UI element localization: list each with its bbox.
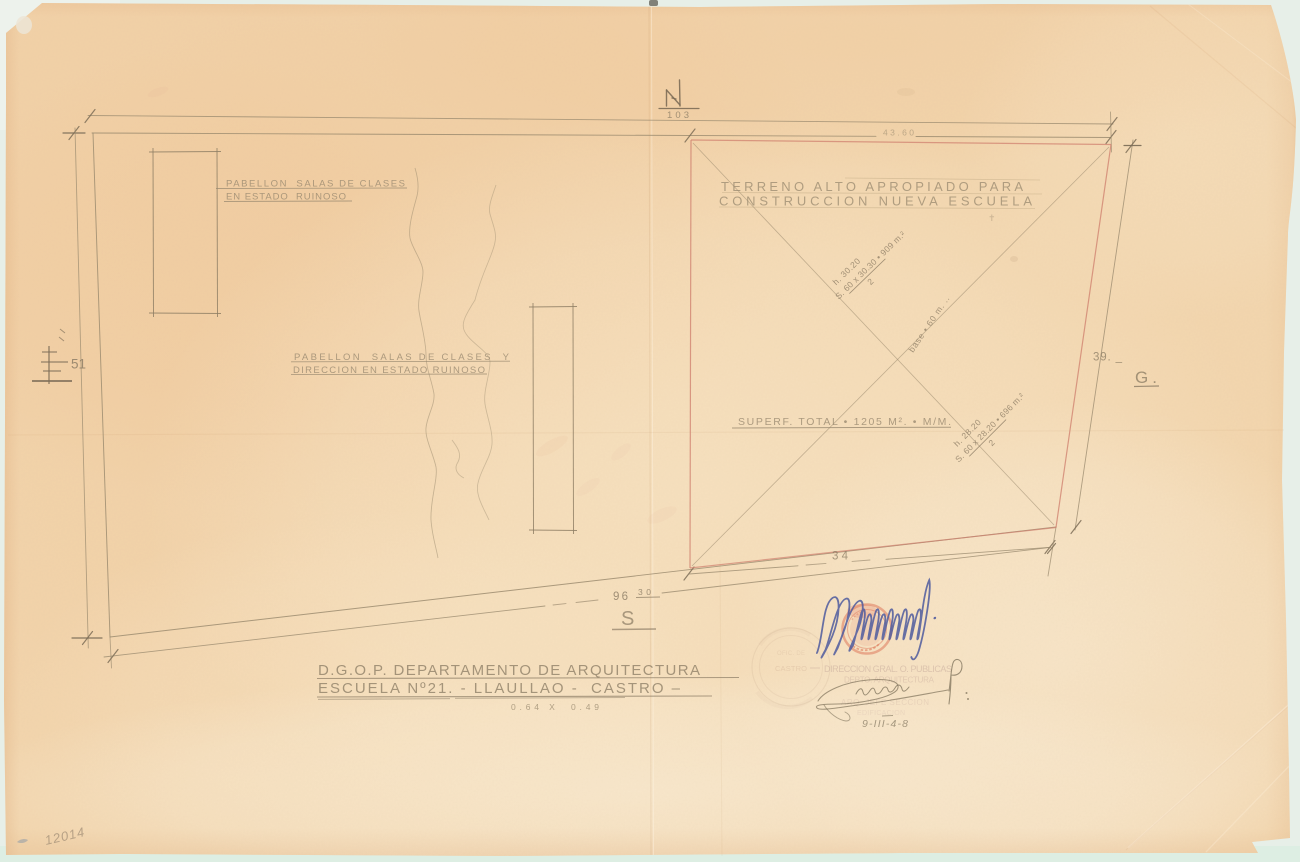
svg-text:OFIC. DE: OFIC. DE bbox=[777, 651, 805, 657]
svg-text:9-III-4-8: 9-III-4-8 bbox=[862, 718, 908, 730]
svg-text:G.: G. bbox=[1135, 368, 1157, 387]
svg-text:S: S bbox=[621, 608, 634, 630]
svg-text:CASTRO: CASTRO bbox=[775, 664, 807, 673]
svg-text:51: 51 bbox=[71, 357, 86, 372]
svg-text:43.60: 43.60 bbox=[883, 128, 914, 138]
svg-text:D.G.O.P. DEPARTAMENTO DE ARQUI: D.G.O.P. DEPARTAMENTO DE ARQUITECTURA bbox=[318, 662, 700, 679]
svg-text:103: 103 bbox=[667, 110, 689, 121]
svg-text:SUPERF. TOTAL • 1205 M². • M/M: SUPERF. TOTAL • 1205 M². • M/M. bbox=[738, 416, 951, 428]
svg-text:39. _: 39. _ bbox=[1093, 352, 1123, 364]
svg-text:EDIFICACION: EDIFICACION bbox=[857, 710, 905, 717]
svg-text:DIRECCION GRAL. O. PUBLICAS: DIRECCION GRAL. O. PUBLICAS bbox=[824, 664, 952, 674]
svg-text:✝: ✝ bbox=[988, 213, 996, 223]
